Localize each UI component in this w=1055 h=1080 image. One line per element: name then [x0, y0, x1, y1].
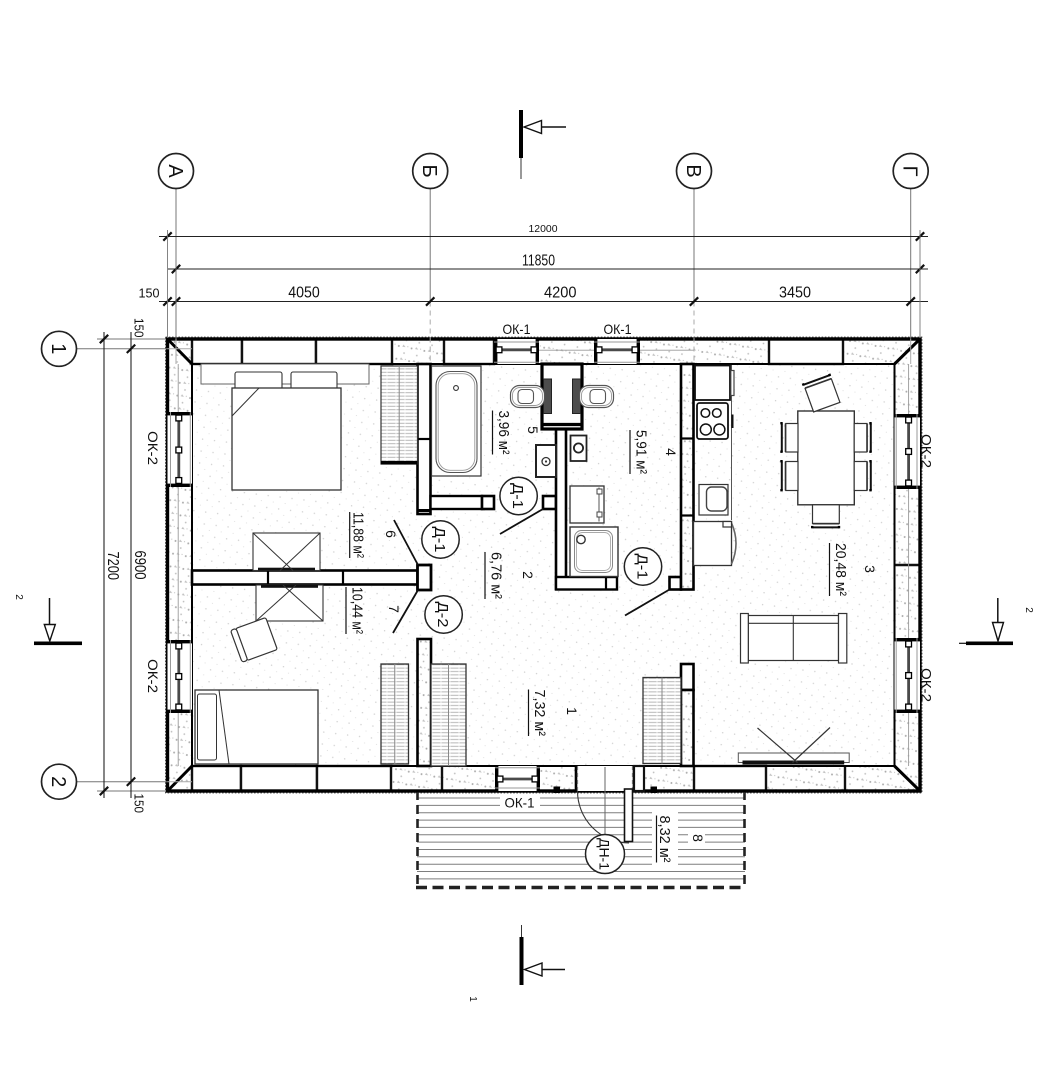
svg-text:5: 5 [525, 426, 541, 434]
svg-text:1: 1 [47, 343, 69, 354]
svg-text:4: 4 [663, 448, 679, 456]
svg-text:Б: Б [418, 164, 440, 177]
svg-text:7,32 м²: 7,32 м² [531, 690, 548, 737]
svg-text:6900: 6900 [131, 551, 148, 580]
svg-text:10,44 м²: 10,44 м² [349, 587, 366, 634]
svg-text:11,88 м²: 11,88 м² [350, 512, 367, 558]
svg-text:3450: 3450 [779, 285, 811, 302]
svg-text:7: 7 [386, 605, 402, 613]
svg-text:Д-1: Д-1 [634, 554, 651, 580]
svg-text:20,48 м²: 20,48 м² [832, 543, 849, 596]
svg-text:12000: 12000 [529, 223, 558, 235]
svg-text:ОК-1: ОК-1 [503, 321, 531, 337]
svg-text:3,96 м²: 3,96 м² [495, 411, 512, 455]
svg-text:5,91 м²: 5,91 м² [633, 430, 650, 474]
svg-text:150: 150 [139, 286, 160, 301]
svg-text:2: 2 [1023, 607, 1034, 613]
svg-text:1: 1 [564, 707, 580, 715]
svg-text:6,76 м²: 6,76 м² [488, 552, 505, 599]
svg-text:Д-1: Д-1 [509, 483, 526, 509]
svg-text:Д-2: Д-2 [434, 602, 451, 628]
svg-text:7200: 7200 [104, 552, 121, 581]
svg-text:4050: 4050 [288, 285, 320, 302]
svg-text:ОК-2: ОК-2 [145, 659, 161, 693]
svg-text:ОК-2: ОК-2 [919, 434, 935, 468]
svg-text:Д-1: Д-1 [431, 527, 448, 553]
svg-text:ОК-2: ОК-2 [145, 431, 161, 465]
svg-text:2: 2 [47, 776, 69, 787]
svg-text:4200: 4200 [544, 285, 577, 302]
svg-text:1: 1 [467, 996, 478, 1002]
svg-text:6: 6 [383, 530, 399, 538]
svg-text:ДН-1: ДН-1 [597, 838, 612, 870]
svg-text:8,32 м²: 8,32 м² [656, 816, 673, 863]
svg-text:11850: 11850 [522, 253, 555, 270]
svg-text:150: 150 [132, 794, 147, 814]
svg-text:8: 8 [690, 834, 706, 842]
svg-text:2: 2 [13, 594, 24, 600]
svg-text:150: 150 [132, 318, 147, 338]
svg-text:А: А [164, 164, 186, 178]
svg-text:ОК-1: ОК-1 [604, 321, 632, 337]
svg-text:Г: Г [899, 166, 921, 177]
svg-text:В: В [682, 164, 704, 177]
svg-text:2: 2 [520, 571, 536, 579]
svg-text:3: 3 [862, 565, 878, 573]
svg-text:ОК-1: ОК-1 [505, 795, 535, 811]
svg-text:ОК-2: ОК-2 [919, 668, 935, 702]
